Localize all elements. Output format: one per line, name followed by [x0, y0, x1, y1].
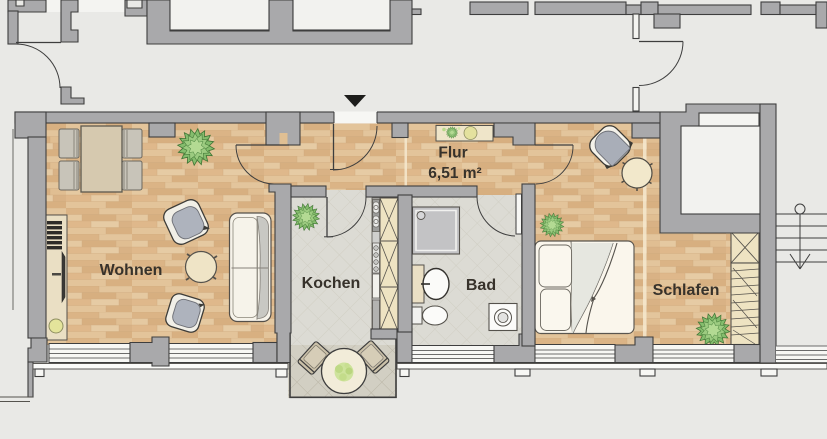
svg-text:Kochen: Kochen: [302, 275, 361, 292]
svg-text:Bad: Bad: [466, 277, 496, 294]
svg-text:6,51 m²: 6,51 m²: [428, 165, 481, 182]
svg-text:Schlafen: Schlafen: [653, 282, 720, 299]
svg-text:Wohnen: Wohnen: [100, 262, 163, 279]
svg-text:Flur: Flur: [438, 145, 467, 162]
